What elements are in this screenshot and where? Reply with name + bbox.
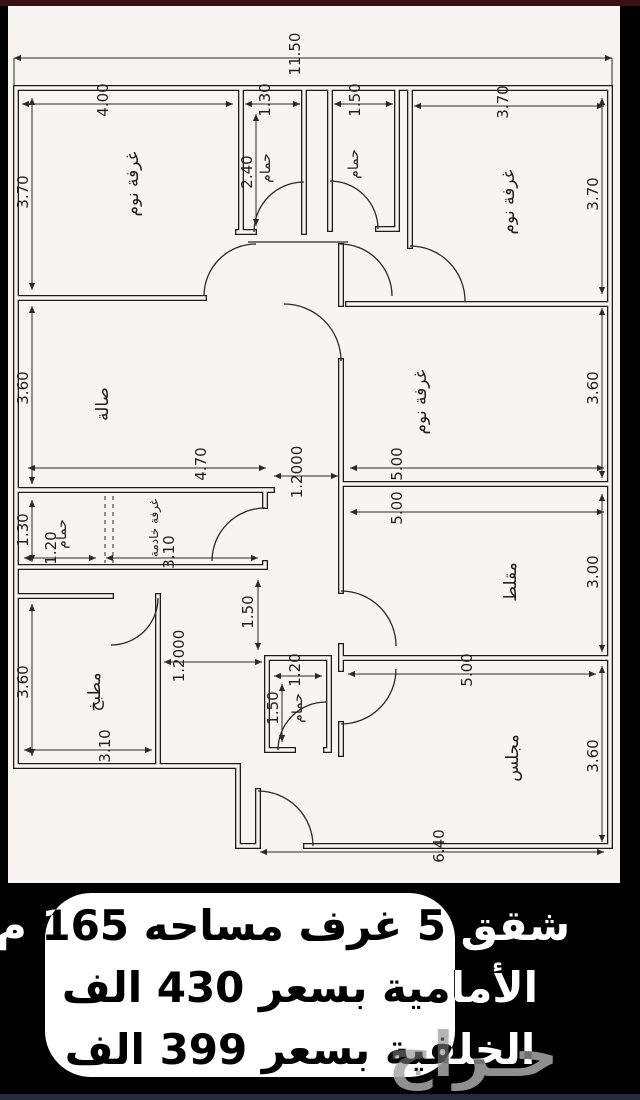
dim-muqallat-width: 5.00	[388, 491, 406, 524]
dim-tr-height: 3.70	[584, 177, 602, 210]
dim-maidroom-width: 3.10	[160, 535, 178, 568]
dim-hall-height: 3.60	[14, 371, 32, 404]
floorplan-paper: 11.50 4.00 3.70 1.30 2.40 1.50 3.70 3.70…	[8, 6, 620, 883]
floorplan-drawing: 11.50 4.00 3.70 1.30 2.40 1.50 3.70 3.70…	[8, 6, 620, 883]
room-label-bedroom-tr: غرفة نوم	[499, 169, 519, 234]
dim-tr-width: 3.70	[494, 85, 512, 118]
room-label-majlis: مجلس	[503, 734, 523, 781]
dim-bath2-width: 1.50	[346, 83, 364, 116]
room-label-hall: صالة	[93, 387, 113, 421]
room-label-muqallat: مقلط	[501, 562, 521, 601]
dim-bedroom-r-width: 5.00	[388, 447, 406, 480]
room-label-maid-bath: حمام	[54, 519, 70, 549]
dim-majlis-bottom: 6.40	[430, 829, 448, 862]
screenshot-root: 11.50 4.00 3.70 1.30 2.40 1.50 3.70 3.70…	[0, 0, 640, 1100]
dim-majlis-height: 3.60	[584, 739, 602, 772]
room-label-bedroom-r: غرفة نوم	[411, 369, 431, 434]
room-label-bath-2: حمام	[346, 149, 362, 179]
room-label-bedroom-tl: غرفة نوم	[123, 151, 143, 216]
bottom-navy-strip	[0, 1094, 640, 1100]
dim-corridor-width-upper: 1.2000	[288, 446, 306, 499]
banner-line-2: الأمامية بسعر 430 الف	[30, 957, 570, 1019]
dim-kitchen-width: 3.10	[96, 729, 114, 762]
room-label-small-bath: حمام	[290, 693, 306, 723]
dim-muqallat-height: 3.00	[584, 555, 602, 588]
room-label-kitchen: مطبخ	[85, 672, 105, 711]
dim-tl-width: 4.00	[94, 83, 112, 116]
dim-tl-height: 3.70	[14, 175, 32, 208]
dim-corridor-height: 1.50	[239, 595, 257, 628]
dim-bath1-depth: 2.40	[238, 155, 256, 188]
dim-overall: 11.50	[286, 33, 304, 76]
dim-bath1-width: 1.30	[256, 83, 274, 116]
dim-bedroom-r-height: 3.60	[584, 371, 602, 404]
banner-line-3: الخلفية بسعر 399 الف	[30, 1019, 570, 1081]
dim-smallbath-height: 1.50	[264, 691, 282, 724]
room-label-bath-1: حمام	[258, 153, 274, 183]
dim-kitchen-height: 3.60	[14, 665, 32, 698]
room-label-maid-room: غرفة خادمة	[147, 499, 162, 557]
price-banner: حـراج شقق 5 غرف مساحه 165 م الأمامية بسع…	[0, 883, 640, 1094]
dashed-partition	[105, 496, 113, 563]
dim-majlis-width: 5.00	[458, 653, 476, 686]
dim-maidbath-height: 1.30	[14, 513, 32, 546]
dim-hall-width: 4.70	[192, 447, 210, 480]
banner-text: شقق 5 غرف مساحه 165 م الأمامية بسعر 430 …	[30, 895, 570, 1081]
dim-smallbath-width: 1.20	[286, 653, 304, 686]
dim-corridor-width-lower: 1.2000	[170, 630, 188, 683]
door-arcs	[111, 181, 465, 846]
banner-line-1: شقق 5 غرف مساحه 165 م	[30, 895, 570, 957]
